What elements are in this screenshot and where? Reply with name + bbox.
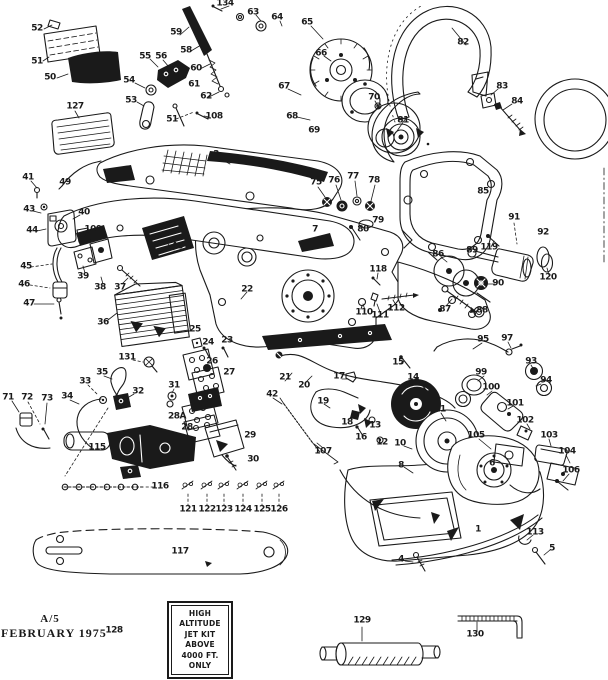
note-box-line: ABOVE [185, 640, 215, 651]
roller-tool [320, 643, 440, 665]
note-box-line: 4000 FT. [181, 651, 218, 662]
chain-file-group [182, 5, 229, 120]
guide-bar [33, 529, 287, 574]
high-altitude-note-box: HIGHALTITUDEJET KITABOVE4000 FT.ONLY [167, 601, 233, 679]
chain-parts-row [182, 481, 284, 489]
side-plate [400, 152, 502, 260]
note-box-line: ALTITUDE [179, 619, 220, 630]
note-box-text: HIGHALTITUDEJET KITABOVE4000 FT.ONLY [171, 605, 229, 675]
saw-chain [62, 484, 144, 490]
footer-revision: A/5 [28, 613, 72, 625]
chainsaw-exploded-diagram-art [0, 0, 608, 680]
top-handle-assembly [58, 145, 354, 259]
oiler-pump-group [16, 357, 196, 479]
note-box-line: JET KIT [185, 630, 216, 641]
handle-latch-group [140, 60, 190, 129]
parts-diagram-page: 5251501275556545359586061625110813463646… [0, 0, 608, 680]
footer-date: FEBRUARY 1975 [1, 626, 107, 641]
note-box-line: HIGH [189, 609, 211, 620]
instruction-plate [52, 113, 114, 154]
flywheel-clutch-group [237, 14, 608, 160]
note-box-line: ONLY [189, 661, 212, 672]
starter-grille-group [44, 20, 121, 83]
cylinder [114, 277, 192, 346]
wrench-tool [458, 616, 522, 638]
